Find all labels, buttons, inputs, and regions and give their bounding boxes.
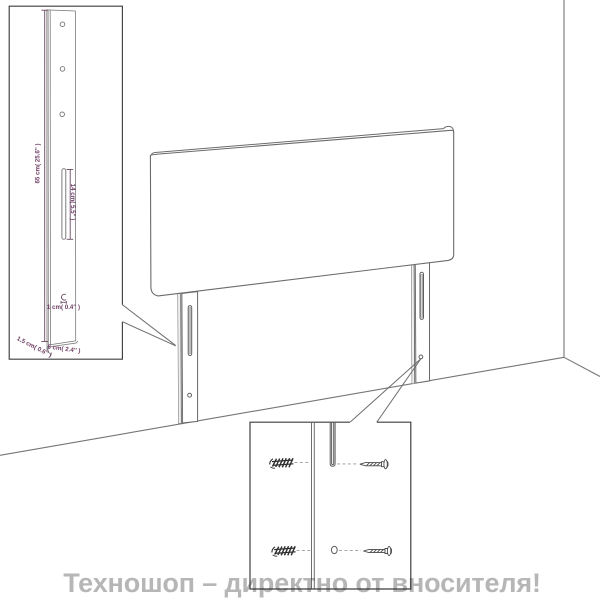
svg-text:65 cm( 25.6'' ): 65 cm( 25.6'' ) [34,143,41,183]
svg-text:1 cm( 0.4'' ): 1 cm( 0.4'' ) [47,304,80,311]
svg-text:14 cm( 5.5'' ): 14 cm( 5.5'' ) [69,184,76,221]
